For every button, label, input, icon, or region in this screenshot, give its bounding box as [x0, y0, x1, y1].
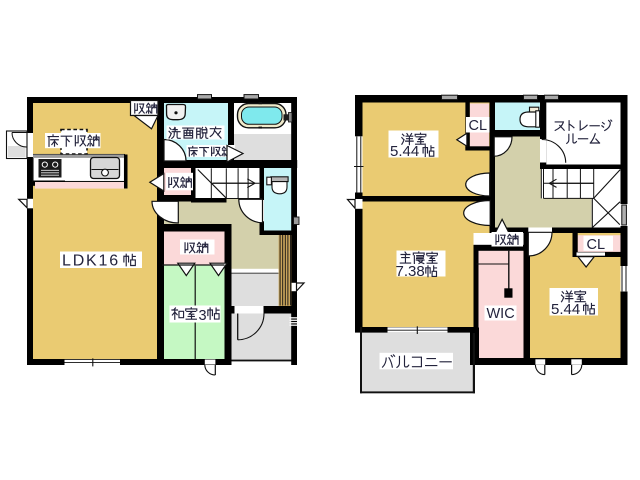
svg-text:7.38: 7.38: [396, 263, 425, 280]
svg-text:3: 3: [199, 308, 207, 324]
svg-text:CL: CL: [587, 237, 606, 253]
svg-text:5.44: 5.44: [551, 301, 580, 318]
svg-text:LDK16: LDK16: [62, 253, 120, 270]
svg-text:WIC: WIC: [487, 306, 515, 322]
svg-text:5.44: 5.44: [390, 143, 419, 160]
svg-text:CL: CL: [469, 118, 488, 134]
